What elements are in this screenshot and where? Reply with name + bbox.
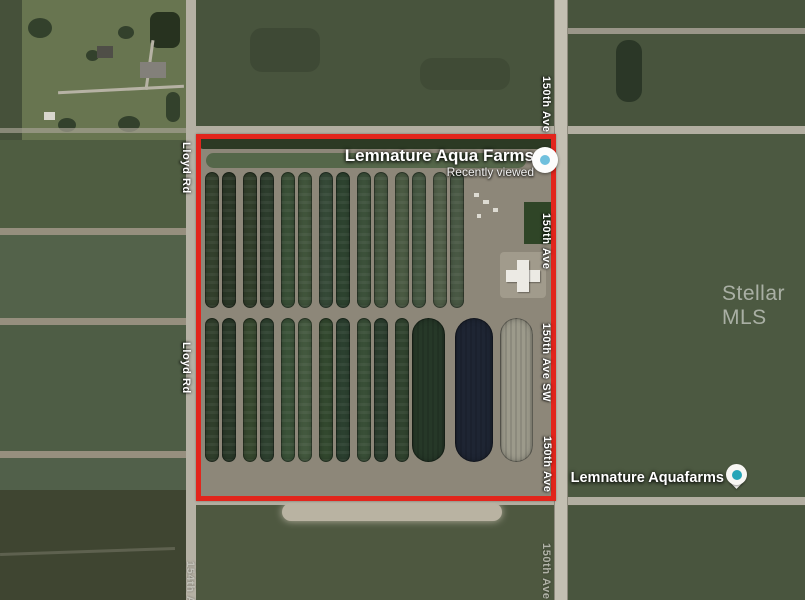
building [97,46,113,58]
tree-pond-patch [150,12,180,48]
scrub-land [0,490,188,600]
place-pin-icon[interactable] [726,464,747,485]
crop-field [0,325,188,453]
crop-field [0,235,188,320]
field-shade [250,28,320,72]
field-divider [0,451,188,458]
crop-field [0,458,188,492]
primary-place-status: Recently viewed [314,165,534,179]
field-shade [420,58,510,90]
building [44,112,55,120]
road-label-150th-ave-mid: 150th Ave [540,213,552,270]
road-label-lloyd-upper: Lloyd Rd [180,142,192,194]
road-label-lloyd-lower: Lloyd Rd [180,342,192,394]
road-label-150th-ave-top: 150th Ave [540,76,552,133]
scrub-strip [0,0,22,142]
crop-field [0,140,188,230]
recently-viewed-pin-icon[interactable] [532,147,558,173]
secondary-place-label[interactable]: Lemnature Aquafarms [544,469,724,488]
road-lloyd [186,0,196,600]
building [140,62,166,78]
road-label-154th-ave-bottom: 154th Ave [184,561,196,600]
road-horizontal-top [196,126,805,134]
satellite-map[interactable]: Lemnature Aqua Farms Recently viewed Lem… [0,0,805,600]
field-divider [0,228,188,235]
road-150th-ave [554,0,568,600]
road-label-150th-ave-lower: 150th Ave [541,436,553,493]
pin-dot [732,470,742,480]
parcel-boundary [196,134,556,501]
primary-place-name[interactable]: Lemnature Aqua Farms [314,146,534,165]
crop-field [566,506,805,600]
road-label-150th-ave-bottom: 150th Ave [540,543,552,600]
stellar-mls-watermark: Stellar MLS [722,282,805,330]
tree-row [166,92,180,122]
pale-dirt-patch [282,503,502,521]
secondary-place-name[interactable]: Lemnature Aquafarms [544,469,724,488]
tree-clump [118,26,134,39]
field-divider [566,28,805,34]
field-divider [0,318,188,325]
road-horizontal-faint [0,128,186,133]
tree-clump [28,18,52,38]
tree-clump [616,40,642,102]
road-label-150th-ave-sw: 150th Ave SW [540,323,552,402]
primary-place-label[interactable]: Lemnature Aqua Farms Recently viewed [314,146,534,179]
